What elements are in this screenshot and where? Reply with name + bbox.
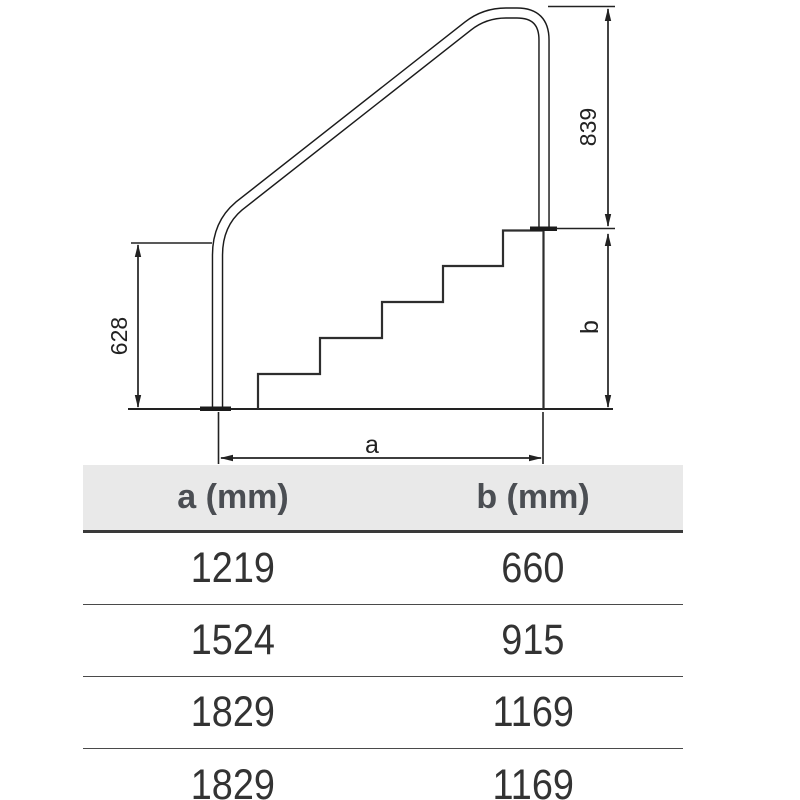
right-anchor-flange	[530, 227, 557, 232]
table-row: 1524 915	[83, 605, 683, 677]
cell-b-value: 915	[501, 616, 564, 665]
column-header-a: a (mm)	[83, 465, 383, 530]
dimension-stair-height: b	[576, 233, 611, 408]
dim-label-a: a	[365, 431, 379, 459]
table-header-row: a (mm) b (mm)	[83, 465, 683, 533]
arrow-right-icon	[529, 455, 542, 461]
cell-a-value: 1829	[191, 688, 275, 737]
arrow-down-icon	[605, 214, 611, 227]
dimensions-table: a (mm) b (mm) 1219 660 1524 915 1829 116…	[83, 465, 683, 800]
table-row: 1829 1169	[83, 749, 683, 800]
dimension-left-post-height: 628	[106, 244, 141, 408]
handrail-technical-drawing: 628 839 b a	[0, 0, 800, 465]
cell-b-value: 1169	[492, 688, 573, 737]
dim-label-628: 628	[106, 317, 132, 355]
arrow-left-icon	[220, 455, 233, 461]
handrail-inner	[218, 13, 545, 411]
handrail-outline	[218, 13, 545, 409]
staircase-outline	[258, 231, 544, 410]
arrow-up-icon	[605, 233, 611, 246]
column-header-b: b (mm)	[383, 465, 683, 530]
dim-label-b: b	[576, 320, 604, 334]
arrow-up-icon	[135, 244, 141, 257]
cell-a-value: 1219	[191, 544, 275, 593]
arrow-down-icon	[135, 395, 141, 408]
cell-a-value: 1829	[191, 761, 275, 800]
handrail-tube	[218, 13, 545, 411]
left-anchor-flange	[200, 407, 231, 412]
table-row: 1829 1169	[83, 677, 683, 749]
product-dimension-sheet: 628 839 b a a (mm) b (mm)	[0, 0, 800, 800]
table-row: 1219 660	[83, 533, 683, 605]
arrow-up-icon	[605, 8, 611, 21]
arrow-down-icon	[605, 395, 611, 408]
cell-b-value: 660	[501, 544, 564, 593]
cell-b-value: 1169	[492, 761, 573, 800]
dim-label-839: 839	[575, 108, 601, 146]
cell-a-value: 1524	[191, 616, 275, 665]
dimension-base-width: a	[220, 431, 542, 461]
dimension-rail-height: 839	[575, 8, 611, 227]
